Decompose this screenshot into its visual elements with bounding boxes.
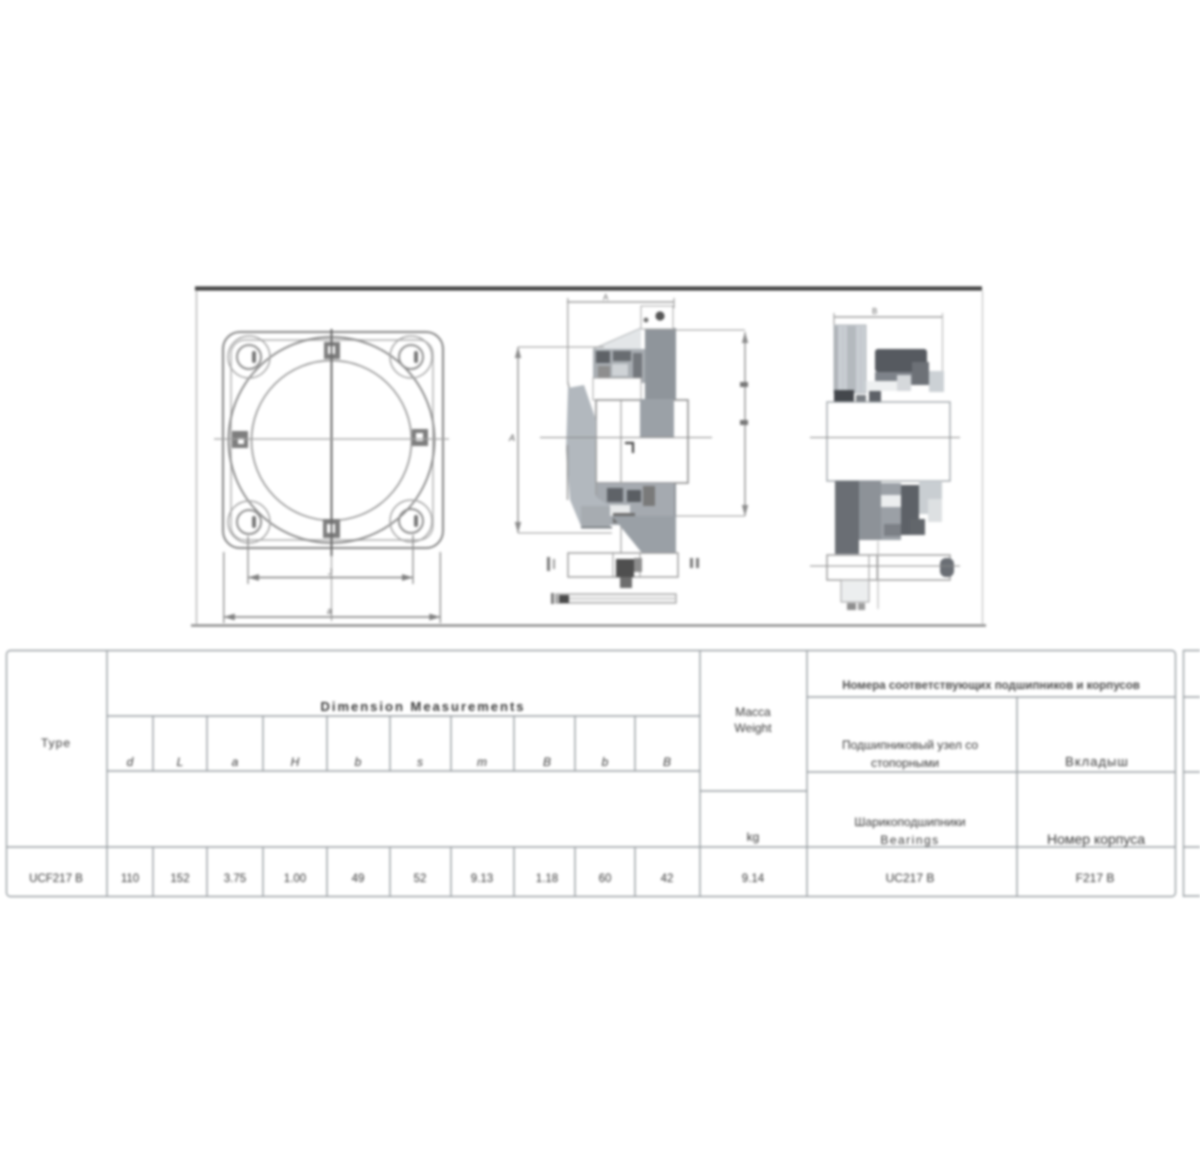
svg-text:52: 52 (414, 873, 427, 885)
svg-text:UC217 B: UC217 B (886, 871, 935, 885)
svg-text:49: 49 (352, 873, 365, 885)
svg-text:Bearings: Bearings (880, 833, 939, 847)
svg-text:B: B (543, 755, 551, 769)
svg-text:1.18: 1.18 (536, 873, 558, 885)
svg-text:Шарикоподшипники: Шарикоподшипники (854, 815, 965, 829)
svg-text:B: B (872, 307, 877, 316)
svg-text:a: a (327, 606, 332, 616)
svg-text:9.14: 9.14 (742, 873, 765, 885)
svg-text:Масса: Масса (735, 705, 771, 719)
svg-text:9.13: 9.13 (471, 873, 493, 885)
svg-text:m: m (477, 755, 487, 769)
svg-text:Номер корпуса: Номер корпуса (1047, 831, 1145, 847)
svg-text:B: B (663, 755, 671, 769)
svg-text:Weight: Weight (734, 721, 772, 735)
svg-text:Вкладыш: Вкладыш (1065, 754, 1129, 769)
svg-text:A: A (508, 433, 515, 443)
svg-text:Номера соответствующих подшип: Номера соответствующих подшипников и кор… (842, 680, 1140, 692)
svg-text:60: 60 (599, 873, 612, 885)
svg-text:H: H (291, 755, 300, 769)
svg-text:a: a (232, 755, 239, 769)
svg-text:UCF217 B: UCF217 B (29, 873, 83, 885)
svg-text:b: b (355, 755, 362, 769)
svg-text:L: L (177, 755, 184, 769)
svg-text:110: 110 (121, 873, 139, 885)
svg-text:kg: kg (747, 830, 760, 844)
svg-text:d: d (127, 755, 134, 769)
svg-text:A: A (603, 293, 609, 302)
svg-text:1.00: 1.00 (284, 873, 306, 885)
svg-text:42: 42 (661, 873, 674, 885)
svg-text:152: 152 (170, 873, 189, 885)
svg-text:F217 B: F217 B (1076, 871, 1115, 885)
svg-text:3.75: 3.75 (224, 873, 246, 885)
svg-text:Подшипниковый узел со: Подшипниковый узел со (842, 738, 978, 752)
svg-text:b: b (602, 755, 609, 769)
svg-text:стопорными: стопорными (871, 756, 939, 770)
svg-text:Type: Type (41, 736, 71, 750)
svg-text:Dimension Measurements: Dimension Measurements (320, 699, 525, 714)
svg-text:s: s (417, 755, 423, 769)
